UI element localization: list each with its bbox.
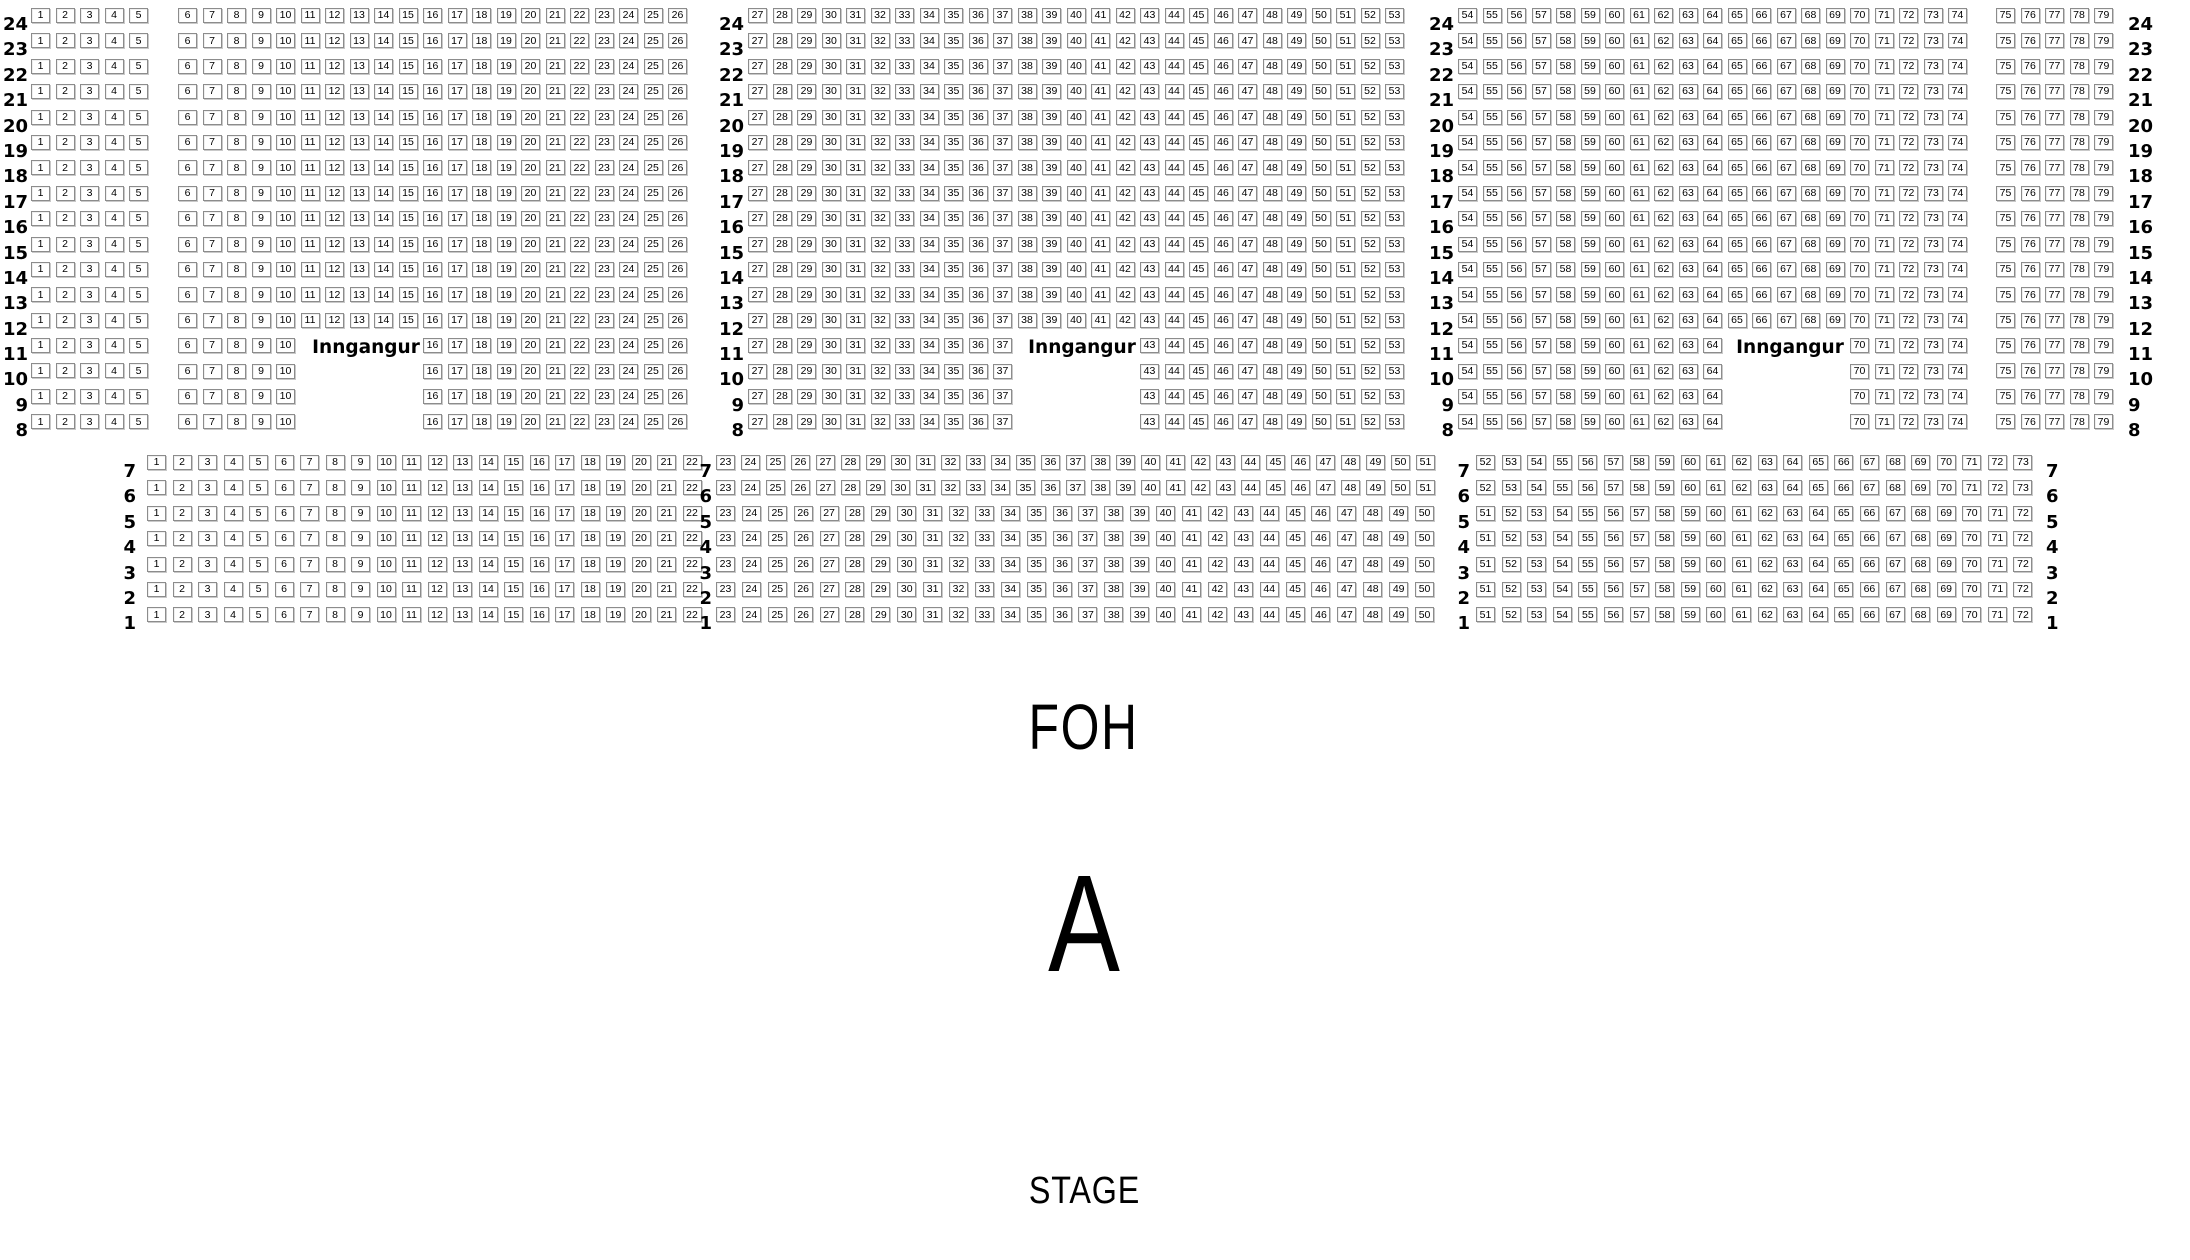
seat[interactable]: 16 [423,262,442,277]
seat[interactable]: 34 [920,313,939,328]
seat[interactable]: 12 [428,480,447,495]
seat[interactable]: 78 [2070,262,2089,277]
seat[interactable]: 77 [2045,363,2064,378]
seat[interactable]: 58 [1556,110,1575,125]
seat[interactable]: 48 [1263,135,1282,150]
seat[interactable]: 14 [374,287,393,302]
seat[interactable]: 30 [822,338,841,353]
seat[interactable]: 34 [920,364,939,379]
seat[interactable]: 41 [1091,8,1110,23]
seat[interactable]: 12 [325,110,344,125]
seat[interactable]: 53 [1385,287,1404,302]
seat[interactable]: 32 [871,110,890,125]
seat[interactable]: 29 [797,338,816,353]
seat[interactable]: 36 [1053,506,1072,521]
seat[interactable]: 31 [923,557,942,572]
seat[interactable]: 45 [1189,160,1208,175]
seat[interactable]: 65 [1728,8,1747,23]
seat[interactable]: 35 [944,287,963,302]
seat[interactable]: 5 [129,313,148,328]
seat[interactable]: 39 [1042,160,1061,175]
seat[interactable]: 16 [530,531,549,546]
seat[interactable]: 70 [1850,389,1869,404]
seat[interactable]: 77 [2045,237,2064,252]
seat[interactable]: 68 [1801,8,1820,23]
seat[interactable]: 57 [1532,262,1551,277]
seat[interactable]: 17 [448,160,467,175]
seat[interactable]: 63 [1679,313,1698,328]
seat[interactable]: 10 [276,414,295,429]
seat[interactable]: 16 [423,33,442,48]
seat[interactable]: 8 [227,160,246,175]
seat[interactable]: 40 [1067,313,1086,328]
seat[interactable]: 48 [1363,531,1382,546]
seat[interactable]: 67 [1860,480,1879,495]
seat[interactable]: 36 [969,110,988,125]
seat[interactable]: 72 [1899,338,1918,353]
seat[interactable]: 55 [1483,414,1502,429]
seat[interactable]: 35 [1027,557,1046,572]
seat[interactable]: 73 [1924,160,1943,175]
seat[interactable]: 70 [1850,135,1869,150]
seat[interactable]: 71 [1875,237,1894,252]
seat[interactable]: 30 [822,237,841,252]
seat[interactable]: 70 [1850,211,1869,226]
seat[interactable]: 34 [920,8,939,23]
seat[interactable]: 48 [1363,607,1382,622]
seat[interactable]: 56 [1507,313,1526,328]
seat[interactable]: 11 [301,160,320,175]
seat[interactable]: 21 [546,8,565,23]
seat[interactable]: 48 [1341,455,1360,470]
seat[interactable]: 11 [301,84,320,99]
seat[interactable]: 5 [129,262,148,277]
seat[interactable]: 11 [301,313,320,328]
seat[interactable]: 34 [920,84,939,99]
seat[interactable]: 34 [1001,506,1020,521]
seat[interactable]: 29 [797,262,816,277]
seat[interactable]: 26 [668,160,687,175]
seat[interactable]: 51 [1476,557,1495,572]
seat[interactable]: 50 [1312,364,1331,379]
seat[interactable]: 29 [797,84,816,99]
seat[interactable]: 55 [1483,313,1502,328]
seat[interactable]: 32 [949,506,968,521]
seat[interactable]: 5 [129,135,148,150]
seat[interactable]: 60 [1605,186,1624,201]
seat[interactable]: 55 [1578,607,1597,622]
seat[interactable]: 51 [1476,531,1495,546]
seat[interactable]: 54 [1458,211,1477,226]
seat[interactable]: 71 [1875,84,1894,99]
seat[interactable]: 52 [1361,59,1380,74]
seat[interactable]: 44 [1260,582,1279,597]
seat[interactable]: 54 [1458,59,1477,74]
seat[interactable]: 12 [325,84,344,99]
seat[interactable]: 68 [1911,582,1930,597]
seat[interactable]: 66 [1752,262,1771,277]
seat[interactable]: 66 [1860,531,1879,546]
seat[interactable]: 26 [668,110,687,125]
seat[interactable]: 25 [644,237,663,252]
seat[interactable]: 78 [2070,287,2089,302]
seat[interactable]: 20 [632,582,651,597]
seat[interactable]: 65 [1728,110,1747,125]
seat[interactable]: 2 [173,607,192,622]
seat[interactable]: 52 [1361,287,1380,302]
seat[interactable]: 66 [1860,607,1879,622]
seat[interactable]: 49 [1287,262,1306,277]
seat[interactable]: 41 [1091,33,1110,48]
seat[interactable]: 19 [497,84,516,99]
seat[interactable]: 36 [1041,480,1060,495]
seat[interactable]: 41 [1091,262,1110,277]
seat[interactable]: 20 [521,160,540,175]
seat[interactable]: 43 [1140,110,1159,125]
seat[interactable]: 31 [846,135,865,150]
seat[interactable]: 29 [797,414,816,429]
seat[interactable]: 13 [453,480,472,495]
seat[interactable]: 13 [453,455,472,470]
seat[interactable]: 29 [797,59,816,74]
seat[interactable]: 47 [1337,531,1356,546]
seat[interactable]: 71 [1875,110,1894,125]
seat[interactable]: 37 [993,287,1012,302]
seat[interactable]: 8 [227,414,246,429]
seat[interactable]: 74 [1948,59,1967,74]
seat[interactable]: 56 [1507,287,1526,302]
seat[interactable]: 5 [129,287,148,302]
seat[interactable]: 59 [1655,455,1674,470]
seat[interactable]: 64 [1703,160,1722,175]
seat[interactable]: 56 [1507,160,1526,175]
seat[interactable]: 76 [2021,33,2040,48]
seat[interactable]: 25 [644,338,663,353]
seat[interactable]: 58 [1556,8,1575,23]
seat[interactable]: 75 [1996,262,2015,277]
seat[interactable]: 50 [1312,313,1331,328]
seat[interactable]: 35 [944,8,963,23]
seat[interactable]: 2 [56,186,75,201]
seat[interactable]: 56 [1507,211,1526,226]
seat[interactable]: 35 [1027,582,1046,597]
seat[interactable]: 55 [1578,506,1597,521]
seat[interactable]: 52 [1361,313,1380,328]
seat[interactable]: 66 [1752,135,1771,150]
seat[interactable]: 7 [203,160,222,175]
seat[interactable]: 48 [1263,186,1282,201]
seat[interactable]: 47 [1238,59,1257,74]
seat[interactable]: 1 [31,160,50,175]
seat[interactable]: 16 [423,160,442,175]
seat[interactable]: 19 [497,338,516,353]
seat[interactable]: 49 [1287,338,1306,353]
seat[interactable]: 54 [1458,8,1477,23]
seat[interactable]: 53 [1502,480,1521,495]
seat[interactable]: 23 [716,480,735,495]
seat[interactable]: 45 [1189,33,1208,48]
seat[interactable]: 7 [203,313,222,328]
seat[interactable]: 74 [1948,262,1967,277]
seat[interactable]: 33 [895,389,914,404]
seat[interactable]: 21 [546,364,565,379]
seat[interactable]: 68 [1801,84,1820,99]
seat[interactable]: 45 [1286,531,1305,546]
seat[interactable]: 38 [1018,186,1037,201]
seat[interactable]: 33 [895,186,914,201]
seat[interactable]: 46 [1311,506,1330,521]
seat[interactable]: 57 [1630,531,1649,546]
seat[interactable]: 50 [1415,607,1434,622]
seat[interactable]: 27 [748,338,767,353]
seat[interactable]: 68 [1801,313,1820,328]
seat[interactable]: 77 [2045,287,2064,302]
seat[interactable]: 49 [1287,186,1306,201]
seat[interactable]: 73 [1924,59,1943,74]
seat[interactable]: 47 [1337,607,1356,622]
seat[interactable]: 27 [816,455,835,470]
seat[interactable]: 78 [2070,313,2089,328]
seat[interactable]: 8 [227,313,246,328]
seat[interactable]: 19 [497,313,516,328]
seat[interactable]: 70 [1850,33,1869,48]
seat[interactable]: 15 [399,160,418,175]
seat[interactable]: 10 [276,262,295,277]
seat[interactable]: 10 [377,531,396,546]
seat[interactable]: 20 [521,262,540,277]
seat[interactable]: 74 [1948,8,1967,23]
seat[interactable]: 29 [797,313,816,328]
seat[interactable]: 75 [1996,8,2015,23]
seat[interactable]: 6 [275,455,294,470]
seat[interactable]: 59 [1581,135,1600,150]
seat[interactable]: 9 [252,211,271,226]
seat[interactable]: 57 [1532,33,1551,48]
seat[interactable]: 44 [1241,455,1260,470]
seat[interactable]: 78 [2070,59,2089,74]
seat[interactable]: 29 [797,211,816,226]
seat[interactable]: 59 [1581,287,1600,302]
seat[interactable]: 11 [402,455,421,470]
seat[interactable]: 41 [1091,313,1110,328]
seat[interactable]: 22 [570,160,589,175]
seat[interactable]: 63 [1783,582,1802,597]
seat[interactable]: 16 [530,607,549,622]
seat[interactable]: 32 [941,480,960,495]
seat[interactable]: 3 [198,455,217,470]
seat[interactable]: 39 [1042,313,1061,328]
seat[interactable]: 54 [1553,582,1572,597]
seat[interactable]: 22 [570,84,589,99]
seat[interactable]: 24 [619,338,638,353]
seat[interactable]: 75 [1996,363,2015,378]
seat[interactable]: 12 [428,506,447,521]
seat[interactable]: 48 [1363,557,1382,572]
seat[interactable]: 9 [252,186,271,201]
seat[interactable]: 19 [497,211,516,226]
seat[interactable]: 48 [1263,287,1282,302]
seat[interactable]: 67 [1777,313,1796,328]
seat[interactable]: 31 [923,506,942,521]
seat[interactable]: 58 [1556,389,1575,404]
seat[interactable]: 52 [1361,135,1380,150]
seat[interactable]: 4 [224,506,243,521]
seat[interactable]: 72 [2013,582,2032,597]
seat[interactable]: 17 [448,262,467,277]
seat[interactable]: 69 [1826,313,1845,328]
seat[interactable]: 76 [2021,186,2040,201]
seat[interactable]: 64 [1703,237,1722,252]
seat[interactable]: 23 [595,211,614,226]
seat[interactable]: 71 [1988,531,2007,546]
seat[interactable]: 71 [1875,414,1894,429]
seat[interactable]: 59 [1681,506,1700,521]
seat[interactable]: 39 [1130,531,1149,546]
seat[interactable]: 36 [969,33,988,48]
seat[interactable]: 34 [920,33,939,48]
seat[interactable]: 48 [1263,8,1282,23]
seat[interactable]: 79 [2094,8,2113,23]
seat[interactable]: 71 [1875,59,1894,74]
seat[interactable]: 19 [606,557,625,572]
seat[interactable]: 41 [1091,135,1110,150]
seat[interactable]: 51 [1476,506,1495,521]
seat[interactable]: 73 [1924,338,1943,353]
seat[interactable]: 53 [1527,531,1546,546]
seat[interactable]: 54 [1553,531,1572,546]
seat[interactable]: 70 [1937,455,1956,470]
seat[interactable]: 57 [1532,84,1551,99]
seat[interactable]: 72 [1899,364,1918,379]
seat[interactable]: 16 [423,364,442,379]
seat[interactable]: 4 [105,414,124,429]
seat[interactable]: 75 [1996,211,2015,226]
seat[interactable]: 35 [944,135,963,150]
seat[interactable]: 35 [1027,531,1046,546]
seat[interactable]: 22 [570,389,589,404]
seat[interactable]: 72 [2013,531,2032,546]
seat[interactable]: 29 [866,455,885,470]
seat[interactable]: 72 [1899,262,1918,277]
seat[interactable]: 44 [1165,59,1184,74]
seat[interactable]: 15 [504,582,523,597]
seat[interactable]: 63 [1679,8,1698,23]
seat[interactable]: 57 [1630,607,1649,622]
seat[interactable]: 13 [350,59,369,74]
seat[interactable]: 60 [1706,531,1725,546]
seat[interactable]: 26 [668,414,687,429]
seat[interactable]: 33 [895,160,914,175]
seat[interactable]: 58 [1655,531,1674,546]
seat[interactable]: 79 [2094,237,2113,252]
seat[interactable]: 50 [1312,287,1331,302]
seat[interactable]: 79 [2094,211,2113,226]
seat[interactable]: 36 [969,84,988,99]
seat[interactable]: 24 [619,84,638,99]
seat[interactable]: 73 [1924,211,1943,226]
seat[interactable]: 33 [895,237,914,252]
seat[interactable]: 35 [944,389,963,404]
seat[interactable]: 66 [1752,313,1771,328]
seat[interactable]: 4 [105,160,124,175]
seat[interactable]: 42 [1116,135,1135,150]
seat[interactable]: 41 [1091,59,1110,74]
seat[interactable]: 15 [399,33,418,48]
seat[interactable]: 3 [80,160,99,175]
seat[interactable]: 65 [1728,262,1747,277]
seat[interactable]: 46 [1311,531,1330,546]
seat[interactable]: 42 [1208,557,1227,572]
seat[interactable]: 16 [423,211,442,226]
seat[interactable]: 52 [1476,455,1495,470]
seat[interactable]: 1 [31,363,50,378]
seat[interactable]: 9 [252,33,271,48]
seat[interactable]: 44 [1260,607,1279,622]
seat[interactable]: 65 [1728,160,1747,175]
seat[interactable]: 44 [1241,480,1260,495]
seat[interactable]: 35 [944,338,963,353]
seat[interactable]: 79 [2094,84,2113,99]
seat[interactable]: 4 [224,582,243,597]
seat[interactable]: 14 [479,455,498,470]
seat[interactable]: 36 [969,8,988,23]
seat[interactable]: 78 [2070,84,2089,99]
seat[interactable]: 23 [595,59,614,74]
seat[interactable]: 37 [993,135,1012,150]
seat[interactable]: 76 [2021,59,2040,74]
seat[interactable]: 12 [325,211,344,226]
seat[interactable]: 3 [80,186,99,201]
seat[interactable]: 72 [2013,607,2032,622]
seat[interactable]: 38 [1018,135,1037,150]
seat[interactable]: 49 [1366,455,1385,470]
seat[interactable]: 60 [1706,582,1725,597]
seat[interactable]: 76 [2021,84,2040,99]
seat[interactable]: 32 [871,84,890,99]
seat[interactable]: 25 [768,506,787,521]
seat[interactable]: 6 [178,364,197,379]
seat[interactable]: 64 [1703,389,1722,404]
seat[interactable]: 62 [1654,84,1673,99]
seat[interactable]: 29 [871,582,890,597]
seat[interactable]: 12 [428,455,447,470]
seat[interactable]: 20 [632,455,651,470]
seat[interactable]: 23 [595,237,614,252]
seat[interactable]: 69 [1911,455,1930,470]
seat[interactable]: 31 [923,531,942,546]
seat[interactable]: 64 [1703,364,1722,379]
seat[interactable]: 67 [1886,557,1905,572]
seat[interactable]: 11 [301,59,320,74]
seat[interactable]: 5 [129,84,148,99]
seat[interactable]: 17 [448,414,467,429]
seat[interactable]: 12 [325,160,344,175]
seat[interactable]: 23 [595,135,614,150]
seat[interactable]: 11 [402,506,421,521]
seat[interactable]: 30 [822,8,841,23]
seat[interactable]: 13 [350,237,369,252]
seat[interactable]: 26 [668,135,687,150]
seat[interactable]: 73 [1924,389,1943,404]
seat[interactable]: 75 [1996,338,2015,353]
seat[interactable]: 48 [1263,313,1282,328]
seat[interactable]: 47 [1238,110,1257,125]
seat[interactable]: 34 [920,59,939,74]
seat[interactable]: 36 [1053,607,1072,622]
seat[interactable]: 67 [1777,59,1796,74]
seat[interactable]: 32 [871,364,890,379]
seat[interactable]: 76 [2021,287,2040,302]
